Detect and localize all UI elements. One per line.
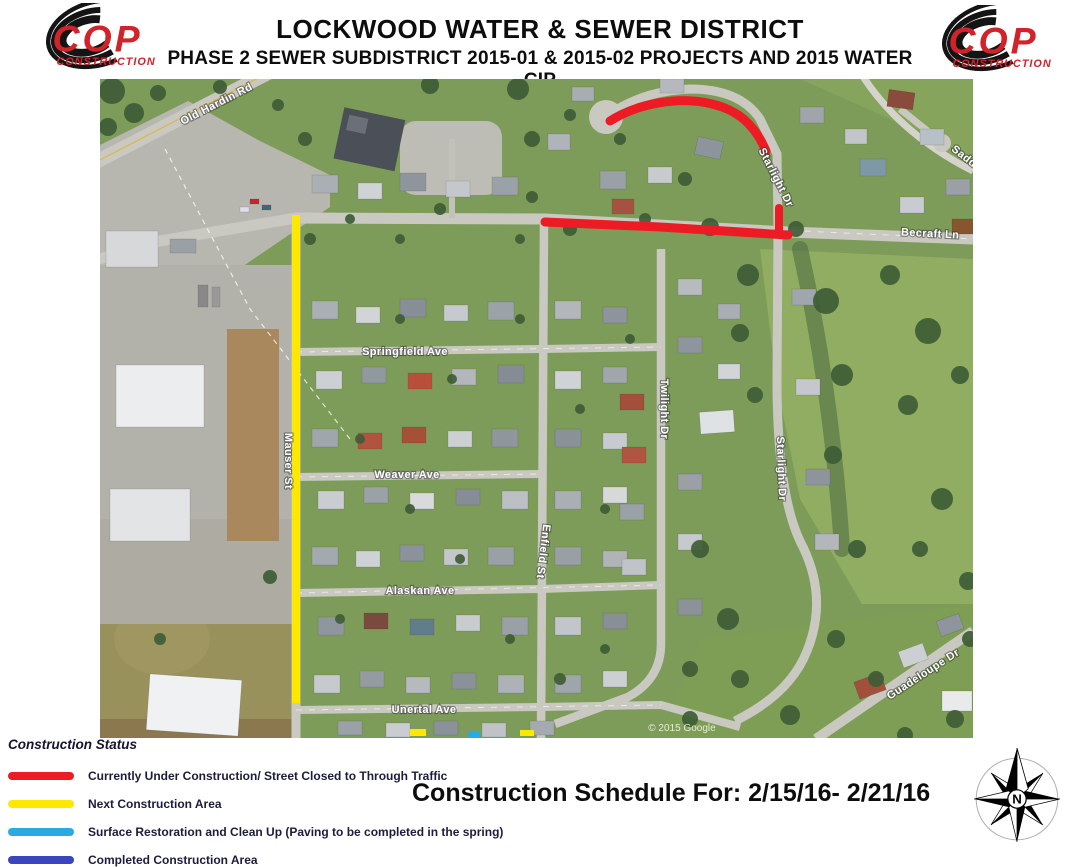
- logo-name: COP: [949, 19, 1039, 61]
- cop-construction-logo: COP CONSTRUCTION: [6, 3, 174, 77]
- legend-item-restoration: Surface Restoration and Clean Up (Paving…: [8, 827, 608, 836]
- map-watermark: © 2015 Google: [648, 723, 716, 734]
- legend-item-completed: Completed Construction Area: [8, 855, 608, 864]
- legend-swatch-blue: [8, 856, 74, 864]
- compass-north-label: N: [1012, 792, 1022, 807]
- compass-rose-icon: N: [966, 748, 1068, 850]
- legend-label: Surface Restoration and Clean Up (Paving…: [88, 825, 503, 839]
- construction-schedule-text: Construction Schedule For: 2/15/16- 2/21…: [412, 779, 930, 808]
- legend-label: Next Construction Area: [88, 797, 222, 811]
- logo-subname: CONSTRUCTION: [56, 56, 155, 68]
- page-title: LOCKWOOD WATER & SEWER DISTRICT: [150, 16, 930, 43]
- legend-label: Currently Under Construction/ Street Clo…: [88, 769, 447, 783]
- aerial-map: Old Hardin Rd Sadd Becraft Ln Springfiel…: [100, 79, 973, 738]
- logo-name: COP: [53, 17, 143, 59]
- street-label-springfield-ave: Springfield Ave: [362, 346, 448, 358]
- street-label-twilight-dr: Twilight Dr: [658, 379, 670, 440]
- street-label-mauser-st: Mauser St: [282, 433, 294, 489]
- street-label-alaskan-ave: Alaskan Ave: [385, 585, 454, 597]
- edge-dash-yellow: [410, 729, 426, 736]
- street-label-weaver-ave: Weaver Ave: [374, 469, 439, 481]
- cop-construction-logo: COP CONSTRUCTION: [902, 5, 1070, 79]
- logo-subname: CONSTRUCTION: [952, 58, 1051, 70]
- legend-swatch-red: [8, 772, 74, 780]
- legend-swatch-yellow: [8, 800, 74, 808]
- legend-heading: Construction Status: [8, 737, 608, 752]
- legend-swatch-cyan: [8, 828, 74, 836]
- edge-dash-yellow-2: [520, 730, 534, 736]
- street-label-starlight-dr-lower: Starlight Dr: [774, 436, 788, 501]
- street-label-unertal-ave: Unertal Ave: [392, 704, 457, 716]
- legend-label: Completed Construction Area: [88, 853, 258, 867]
